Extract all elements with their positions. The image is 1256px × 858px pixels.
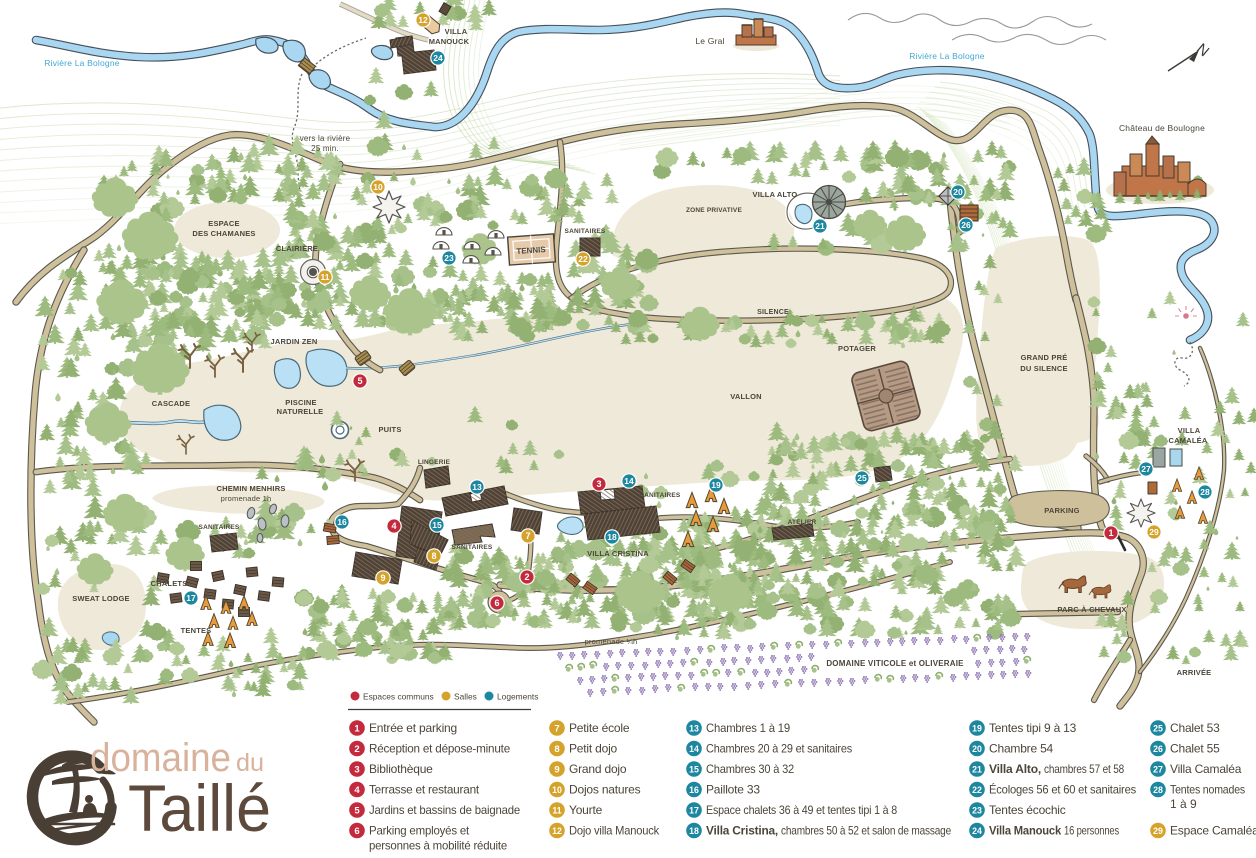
svg-text:9: 9 xyxy=(554,764,559,775)
svg-text:LINGERIE: LINGERIE xyxy=(418,459,451,466)
svg-text:PISCINE: PISCINE xyxy=(285,398,316,407)
svg-text:SANITAIRES: SANITAIRES xyxy=(452,544,493,551)
svg-text:VILLA: VILLA xyxy=(1178,426,1201,435)
svg-text:VALLON: VALLON xyxy=(730,392,761,401)
svg-text:DU SILENCE: DU SILENCE xyxy=(1020,364,1067,373)
svg-text:24: 24 xyxy=(972,826,982,836)
svg-text:12: 12 xyxy=(552,826,562,836)
svg-text:Tentes tipi 9 à 13: Tentes tipi 9 à 13 xyxy=(989,721,1077,735)
svg-text:Rivière La Bologne: Rivière La Bologne xyxy=(909,51,984,61)
svg-text:3: 3 xyxy=(354,764,359,775)
svg-text:SWEAT LODGE: SWEAT LODGE xyxy=(72,594,129,603)
svg-text:14: 14 xyxy=(624,476,634,486)
svg-text:Paillote 33: Paillote 33 xyxy=(706,783,760,797)
svg-text:22: 22 xyxy=(972,785,982,795)
svg-text:ATELIER: ATELIER xyxy=(788,519,817,526)
svg-text:23: 23 xyxy=(444,253,454,263)
svg-text:Jardins et bassins de baignade: Jardins et bassins de baignade xyxy=(369,803,520,817)
svg-text:20: 20 xyxy=(972,744,982,754)
svg-text:7: 7 xyxy=(554,723,559,734)
svg-text:20: 20 xyxy=(953,187,963,197)
svg-text:19: 19 xyxy=(972,723,982,733)
svg-text:12: 12 xyxy=(418,15,428,25)
svg-text:21: 21 xyxy=(972,764,982,774)
svg-text:26: 26 xyxy=(961,220,971,230)
svg-text:7: 7 xyxy=(525,531,530,541)
svg-text:Chalet 53: Chalet 53 xyxy=(1170,721,1220,735)
svg-text:28: 28 xyxy=(1153,785,1163,795)
svg-text:8: 8 xyxy=(431,551,436,561)
svg-text:POTAGER: POTAGER xyxy=(838,344,876,353)
svg-text:Écologes 56 et 60 et sanitaire: Écologes 56 et 60 et sanitaires xyxy=(989,782,1136,797)
svg-text:14: 14 xyxy=(689,744,699,754)
svg-text:16: 16 xyxy=(689,785,699,795)
svg-text:Petite école: Petite école xyxy=(569,721,630,735)
svg-text:Grand dojo: Grand dojo xyxy=(569,762,627,776)
svg-text:27: 27 xyxy=(1153,764,1163,774)
svg-text:26: 26 xyxy=(1153,744,1163,754)
svg-text:29: 29 xyxy=(1153,826,1163,836)
svg-text:1: 1 xyxy=(354,723,360,734)
svg-text:28: 28 xyxy=(1200,487,1210,497)
svg-text:MANOUCK: MANOUCK xyxy=(429,37,470,46)
svg-text:CHEMIN MENHIRS: CHEMIN MENHIRS xyxy=(216,484,285,493)
svg-text:DOMAINE VITICOLE et OLIVERAI: DOMAINE VITICOLE et OLIVERAIE xyxy=(826,659,964,668)
svg-text:16: 16 xyxy=(337,517,347,527)
svg-text:4: 4 xyxy=(354,785,360,796)
svg-text:22: 22 xyxy=(578,254,588,264)
svg-text:18: 18 xyxy=(689,826,699,836)
svg-text:Le Gral: Le Gral xyxy=(695,36,724,46)
svg-text:Villa Manouck: Villa Manouck xyxy=(989,824,1061,838)
svg-text:3: 3 xyxy=(596,479,601,489)
svg-text:25: 25 xyxy=(1153,723,1163,733)
svg-text:19: 19 xyxy=(711,480,721,490)
svg-text:SILENCE: SILENCE xyxy=(757,309,789,316)
svg-text:Parking employés et: Parking employés et xyxy=(369,824,470,838)
svg-text:27: 27 xyxy=(1141,464,1151,474)
svg-text:6: 6 xyxy=(494,598,499,608)
svg-text:24: 24 xyxy=(433,53,443,63)
svg-text:13: 13 xyxy=(472,482,482,492)
svg-text:SANITAIRES: SANITAIRES xyxy=(199,524,240,531)
svg-text:1 à 9: 1 à 9 xyxy=(1170,797,1197,811)
svg-text:15: 15 xyxy=(432,520,442,530)
svg-text:chambres 50 à 52 et salon de m: chambres 50 à 52 et salon de massage xyxy=(781,824,951,838)
svg-text:SANITAIRES: SANITAIRES xyxy=(565,228,606,235)
svg-text:23: 23 xyxy=(972,805,982,815)
svg-text:GRAND PRÉ: GRAND PRÉ xyxy=(1021,353,1068,362)
svg-text:17: 17 xyxy=(689,805,699,815)
svg-text:5: 5 xyxy=(357,376,362,386)
svg-text:CLAIRIÈRE: CLAIRIÈRE xyxy=(276,244,318,253)
svg-text:Espaces communs: Espaces communs xyxy=(363,691,434,701)
svg-text:1: 1 xyxy=(1108,528,1113,538)
svg-text:13: 13 xyxy=(689,723,699,733)
svg-text:4: 4 xyxy=(391,521,396,531)
svg-text:11: 11 xyxy=(321,272,330,282)
svg-text:Tentes écochic: Tentes écochic xyxy=(989,803,1066,817)
svg-text:Espace Camaléa: Espace Camaléa xyxy=(1170,824,1256,838)
svg-text:TENTES: TENTES xyxy=(181,626,212,635)
svg-text:PARKING: PARKING xyxy=(1044,506,1079,515)
svg-text:VILLA CRISTINA: VILLA CRISTINA xyxy=(587,549,649,558)
svg-text:VILLA ALTO: VILLA ALTO xyxy=(753,190,798,199)
svg-text:CAMALÉA: CAMALÉA xyxy=(1169,436,1208,445)
svg-text:Réception et dépose-minute: Réception et dépose-minute xyxy=(369,742,510,756)
svg-text:15: 15 xyxy=(689,764,699,774)
svg-text:Chambre 54: Chambre 54 xyxy=(989,742,1054,756)
svg-text:17: 17 xyxy=(186,593,196,603)
svg-text:VILLA: VILLA xyxy=(445,27,468,36)
svg-text:Bibliothèque: Bibliothèque xyxy=(369,762,433,776)
svg-text:9: 9 xyxy=(380,573,385,583)
svg-text:Tentes nomades: Tentes nomades xyxy=(1170,783,1245,797)
svg-text:vers la rivière: vers la rivière xyxy=(300,134,351,143)
svg-text:Château de Boulogne: Château de Boulogne xyxy=(1119,123,1205,133)
svg-text:8: 8 xyxy=(554,744,559,755)
svg-text:Chambres 1 à 19: Chambres 1 à 19 xyxy=(706,721,790,735)
svg-text:Villa Alto,: Villa Alto, xyxy=(989,762,1041,776)
svg-text:Logements: Logements xyxy=(497,691,538,701)
svg-text:Yourte: Yourte xyxy=(569,803,603,817)
svg-text:Chalet 55: Chalet 55 xyxy=(1170,742,1220,756)
svg-text:25: 25 xyxy=(857,473,867,483)
svg-text:chambres 57 et 58: chambres 57 et 58 xyxy=(1044,762,1124,776)
svg-text:CASCADE: CASCADE xyxy=(152,399,191,408)
svg-text:Taillé: Taillé xyxy=(128,771,271,845)
svg-text:18: 18 xyxy=(607,532,617,542)
svg-text:2: 2 xyxy=(524,572,529,582)
svg-text:ZONE PRIVATIVE: ZONE PRIVATIVE xyxy=(686,207,742,214)
svg-text:Villa Camaléa: Villa Camaléa xyxy=(1170,762,1242,776)
svg-text:Chambres 30 à 32: Chambres 30 à 32 xyxy=(706,762,794,776)
svg-text:Dojos natures: Dojos natures xyxy=(569,783,641,797)
svg-text:SANITAIRES: SANITAIRES xyxy=(640,492,681,499)
svg-text:21: 21 xyxy=(815,221,825,231)
svg-text:11: 11 xyxy=(552,805,561,815)
svg-text:Terrasse et restaurant: Terrasse et restaurant xyxy=(369,783,480,797)
svg-text:NATURELLE: NATURELLE xyxy=(277,407,324,416)
svg-text:2: 2 xyxy=(354,744,359,755)
svg-text:10: 10 xyxy=(373,182,383,192)
svg-text:DES CHAMANES: DES CHAMANES xyxy=(192,229,255,238)
svg-text:Rivière La Bologne: Rivière La Bologne xyxy=(44,58,119,68)
svg-text:29: 29 xyxy=(1149,527,1159,537)
svg-text:Espace chalets 36 à 49 et tent: Espace chalets 36 à 49 et tentes tipi 1 … xyxy=(706,803,897,817)
svg-text:5: 5 xyxy=(354,805,360,816)
svg-text:ESPACE: ESPACE xyxy=(208,219,240,228)
svg-text:Salles: Salles xyxy=(454,691,477,701)
svg-text:Entrée et parking: Entrée et parking xyxy=(369,721,457,735)
svg-text:ARRIVÉE: ARRIVÉE xyxy=(1177,668,1212,677)
svg-text:personnes à mobilité réduite: personnes à mobilité réduite xyxy=(369,839,507,853)
svg-text:PUITS: PUITS xyxy=(378,425,401,434)
svg-text:25 min.: 25 min. xyxy=(311,144,339,153)
svg-text:CHALETS: CHALETS xyxy=(151,579,188,588)
svg-text:Chambres 20 à 29 et sanitaires: Chambres 20 à 29 et sanitaires xyxy=(706,742,852,756)
svg-text:PARC À CHEVAUX: PARC À CHEVAUX xyxy=(1057,605,1126,614)
svg-text:promenade 1h: promenade 1h xyxy=(221,494,272,503)
svg-text:6: 6 xyxy=(354,826,359,837)
svg-text:16 personnes: 16 personnes xyxy=(1064,824,1119,838)
svg-text:JARDIN ZEN: JARDIN ZEN xyxy=(270,337,317,346)
svg-text:promenade ¼h: promenade ¼h xyxy=(585,637,638,646)
svg-text:Petit dojo: Petit dojo xyxy=(569,742,618,756)
svg-text:Dojo villa Manouck: Dojo villa Manouck xyxy=(569,824,660,838)
svg-text:Villa Cristina,: Villa Cristina, xyxy=(706,824,778,838)
svg-text:10: 10 xyxy=(552,785,562,795)
